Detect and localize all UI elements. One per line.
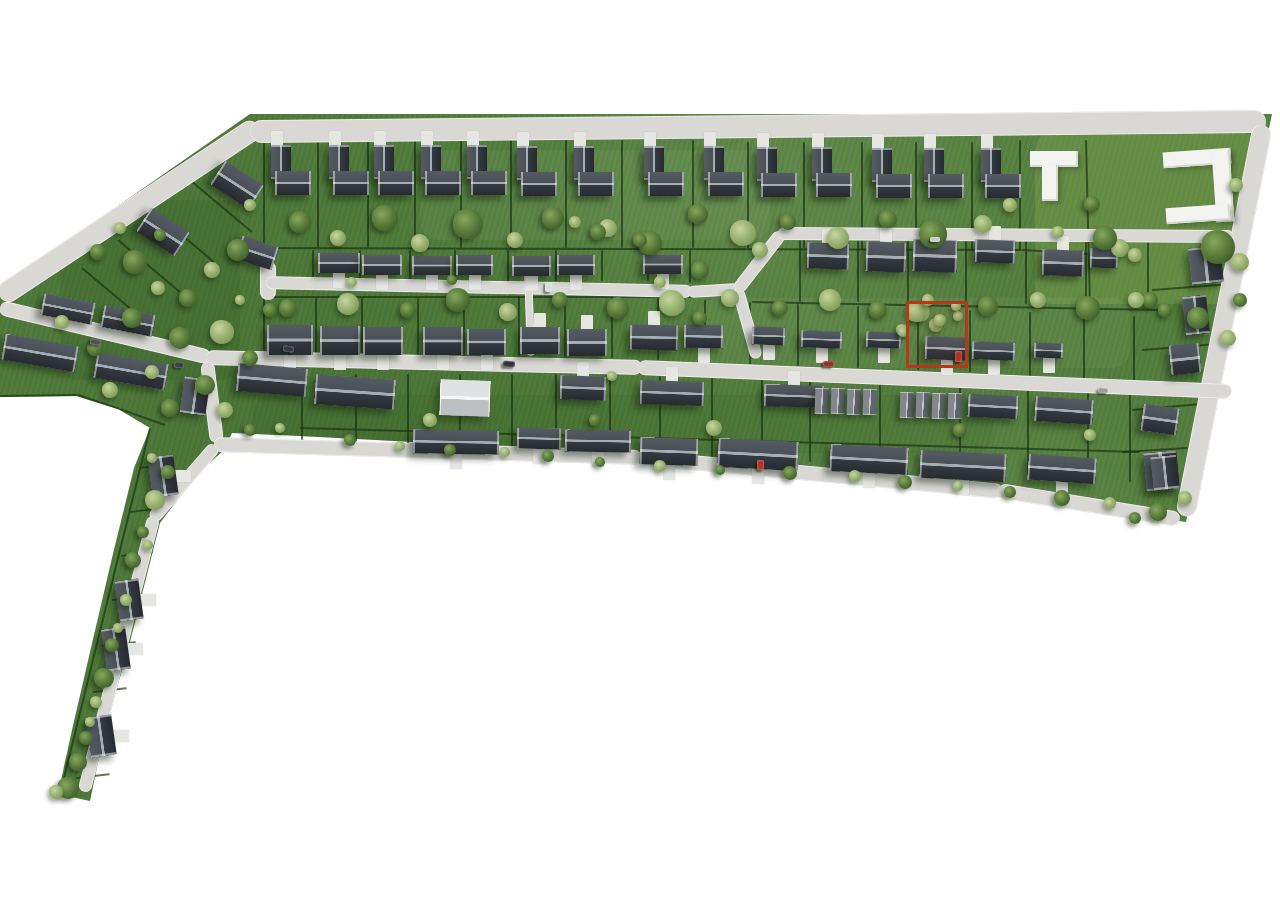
house	[752, 326, 786, 345]
house	[643, 255, 683, 274]
hedge-line	[511, 374, 513, 452]
house	[684, 325, 723, 349]
tree	[780, 214, 796, 230]
tree	[344, 434, 356, 446]
tree	[337, 293, 359, 315]
tree	[347, 277, 357, 287]
driveway	[437, 353, 449, 370]
tree	[372, 205, 398, 231]
tree	[263, 303, 277, 317]
driveway	[481, 353, 493, 370]
house	[413, 429, 499, 454]
car	[823, 361, 834, 367]
tree	[500, 447, 510, 457]
tree	[542, 207, 564, 229]
tree	[659, 290, 685, 316]
house	[314, 374, 396, 410]
driveway	[334, 353, 346, 370]
tree	[849, 470, 861, 482]
house	[236, 363, 308, 397]
tree	[55, 315, 69, 329]
house	[567, 329, 607, 356]
tree	[114, 222, 126, 234]
driveway	[377, 353, 389, 370]
tree	[569, 216, 581, 228]
tree	[137, 526, 149, 538]
tree	[1076, 296, 1100, 320]
house-main-roof	[761, 173, 797, 197]
tree	[400, 302, 416, 318]
tree	[919, 220, 947, 248]
tree	[154, 229, 166, 241]
tree	[395, 441, 405, 451]
house-main-roof	[471, 171, 507, 195]
tree	[90, 696, 102, 708]
tree	[1220, 330, 1236, 346]
house	[417, 145, 463, 199]
hedge-line	[711, 378, 713, 458]
driveway	[763, 343, 775, 360]
house	[1150, 455, 1179, 491]
house	[920, 148, 966, 202]
tree	[179, 289, 197, 307]
tree	[693, 311, 707, 325]
tree	[1084, 196, 1100, 212]
house-main-roof	[578, 172, 614, 196]
tree	[869, 301, 887, 319]
tree	[607, 297, 629, 319]
tree	[195, 375, 215, 395]
hedge-line	[857, 306, 859, 368]
house	[557, 255, 595, 275]
hedge-line	[409, 250, 411, 281]
hedge-line	[965, 238, 967, 302]
tree	[978, 296, 998, 316]
tree	[772, 300, 788, 316]
house	[948, 393, 963, 419]
house	[520, 327, 560, 354]
house	[801, 330, 843, 348]
house	[753, 147, 799, 201]
tree	[1093, 226, 1117, 250]
tree	[1128, 292, 1144, 308]
hedge-line	[1083, 314, 1085, 380]
tree	[244, 424, 256, 436]
house	[640, 380, 705, 406]
house	[868, 148, 914, 202]
tree	[275, 423, 285, 433]
tree	[423, 413, 437, 427]
tree	[1201, 230, 1235, 264]
hedge-line	[0, 394, 78, 397]
tree	[446, 288, 470, 312]
tree	[123, 250, 147, 274]
house	[1034, 396, 1094, 425]
tree	[590, 224, 606, 240]
tree	[898, 475, 912, 489]
tree	[122, 308, 142, 328]
house	[640, 146, 686, 200]
house	[517, 428, 561, 450]
house-main-roof	[928, 174, 964, 198]
tree	[235, 295, 245, 305]
tree	[1030, 292, 1046, 308]
house-main-roof	[816, 173, 852, 197]
house	[808, 147, 854, 201]
tree	[444, 444, 456, 456]
tree	[688, 204, 708, 224]
hedge-line	[317, 140, 319, 248]
driveway	[570, 273, 582, 290]
hedge-line	[507, 250, 509, 281]
tree	[552, 292, 568, 308]
tree	[204, 262, 220, 278]
house	[456, 255, 493, 275]
house	[640, 437, 699, 466]
house-main-roof	[708, 172, 744, 196]
tree	[654, 460, 666, 472]
tree	[145, 365, 159, 379]
tree	[49, 785, 63, 799]
house	[370, 145, 416, 199]
driveway	[1043, 356, 1055, 373]
house	[865, 241, 906, 272]
house	[975, 239, 1016, 263]
house	[318, 253, 360, 273]
tree	[507, 232, 523, 248]
house	[972, 341, 1016, 360]
tree	[102, 382, 118, 398]
house	[916, 392, 931, 418]
white-building	[1042, 165, 1058, 201]
house	[412, 256, 452, 275]
house	[362, 255, 402, 275]
driveway	[426, 273, 438, 290]
tree	[1054, 490, 1070, 506]
tree	[953, 481, 963, 491]
tree	[227, 239, 249, 261]
house	[439, 379, 490, 417]
tree	[1052, 226, 1064, 238]
house	[513, 146, 559, 200]
hedge-line	[1029, 312, 1031, 376]
tree	[69, 753, 87, 771]
tree	[715, 465, 725, 475]
site-plan-canvas	[0, 0, 1280, 906]
hedge-line	[621, 140, 623, 248]
tree	[169, 327, 191, 349]
tree	[85, 717, 95, 727]
tree	[145, 490, 165, 510]
tree	[1158, 303, 1172, 317]
tree	[783, 466, 797, 480]
hedge-line	[315, 298, 317, 356]
house	[570, 146, 616, 200]
tree	[411, 234, 429, 252]
house	[700, 146, 746, 200]
tree	[244, 199, 256, 211]
house	[1042, 249, 1085, 276]
tree	[827, 227, 849, 249]
house	[423, 327, 463, 355]
driveway	[698, 346, 710, 363]
tree	[752, 242, 768, 258]
house	[512, 256, 551, 276]
tree	[79, 731, 93, 745]
house	[565, 429, 631, 452]
hedge-line	[1133, 316, 1135, 382]
tree	[1187, 307, 1209, 329]
house	[967, 394, 1018, 420]
hedge-line	[407, 374, 409, 450]
highlighted-lot[interactable]	[906, 301, 968, 368]
tree	[1229, 178, 1243, 192]
car	[757, 460, 764, 470]
car	[930, 237, 940, 242]
tree	[447, 275, 457, 285]
house	[815, 388, 830, 414]
house	[932, 393, 947, 419]
tree	[113, 623, 123, 633]
tree	[721, 289, 739, 307]
house	[467, 329, 506, 355]
tree	[242, 350, 258, 366]
house-main-roof	[876, 174, 912, 198]
tree	[819, 289, 841, 311]
driveway	[526, 274, 538, 291]
tree	[589, 414, 601, 426]
tree	[542, 450, 554, 462]
tree	[1003, 198, 1017, 212]
tree	[607, 371, 617, 381]
house	[630, 325, 678, 351]
house	[1034, 342, 1064, 358]
tree	[90, 244, 106, 260]
hedge-line	[692, 140, 694, 248]
tree	[1178, 491, 1192, 505]
house-main-roof	[521, 172, 557, 196]
car	[503, 361, 515, 367]
car	[1098, 388, 1108, 394]
tree	[706, 420, 722, 436]
house-main-roof	[333, 171, 369, 195]
tree	[499, 303, 517, 321]
tree	[1104, 497, 1116, 509]
house	[560, 375, 607, 401]
house	[1140, 404, 1179, 436]
driveway	[376, 273, 388, 290]
house	[1169, 343, 1202, 376]
hedge-line	[857, 238, 859, 302]
tree	[147, 453, 157, 463]
driveway	[333, 271, 345, 288]
car	[174, 361, 185, 368]
tree	[691, 261, 709, 279]
house	[363, 327, 403, 355]
tree	[1128, 248, 1142, 262]
tree	[289, 211, 311, 233]
tree	[1084, 429, 1096, 441]
hedge-line	[601, 250, 603, 281]
house	[831, 388, 846, 414]
tree	[1231, 253, 1249, 271]
house	[267, 145, 313, 199]
tree	[1004, 486, 1016, 498]
tree	[595, 457, 605, 467]
tree	[143, 540, 153, 550]
tree	[654, 276, 666, 288]
hedge-line	[1025, 240, 1027, 304]
house	[863, 389, 878, 415]
driveway	[878, 346, 890, 363]
tree	[94, 668, 114, 688]
house	[847, 389, 862, 415]
tree	[330, 230, 346, 246]
house	[325, 145, 371, 199]
house	[900, 392, 915, 418]
house-main-roof	[425, 171, 461, 195]
tree	[1149, 503, 1167, 521]
hedge-line	[797, 304, 799, 366]
hedge-line	[263, 140, 265, 248]
house	[463, 145, 509, 199]
hedge-line	[1129, 394, 1131, 482]
car	[545, 282, 552, 292]
tree	[879, 210, 897, 228]
hedge-line	[417, 298, 419, 356]
house	[919, 450, 1006, 482]
tree	[1142, 292, 1158, 308]
house	[1027, 454, 1097, 485]
tree	[1129, 512, 1141, 524]
house-main-roof	[985, 174, 1021, 198]
hedge-line	[907, 238, 909, 302]
tree	[730, 220, 756, 246]
house-main-roof	[275, 171, 311, 195]
house	[829, 444, 908, 475]
tree	[217, 402, 233, 418]
tree	[105, 638, 119, 652]
tree	[161, 399, 179, 417]
tree	[125, 552, 141, 568]
tree	[974, 215, 992, 233]
tree	[161, 465, 175, 479]
driveway	[988, 358, 1000, 375]
house-main-roof	[378, 171, 414, 195]
tree	[120, 594, 132, 606]
hedge-line	[565, 140, 567, 248]
house	[866, 331, 902, 348]
tree	[953, 423, 967, 437]
tree	[453, 209, 483, 239]
tree	[279, 299, 297, 317]
tree	[633, 233, 647, 247]
tree	[151, 281, 165, 295]
house	[977, 148, 1023, 202]
tree	[1233, 293, 1247, 307]
house	[320, 326, 360, 355]
tree	[210, 320, 234, 344]
driveway	[863, 471, 875, 488]
driveway	[469, 273, 481, 290]
house-main-roof	[648, 172, 684, 196]
hedge-line	[799, 240, 801, 302]
hedge-line	[969, 310, 971, 372]
